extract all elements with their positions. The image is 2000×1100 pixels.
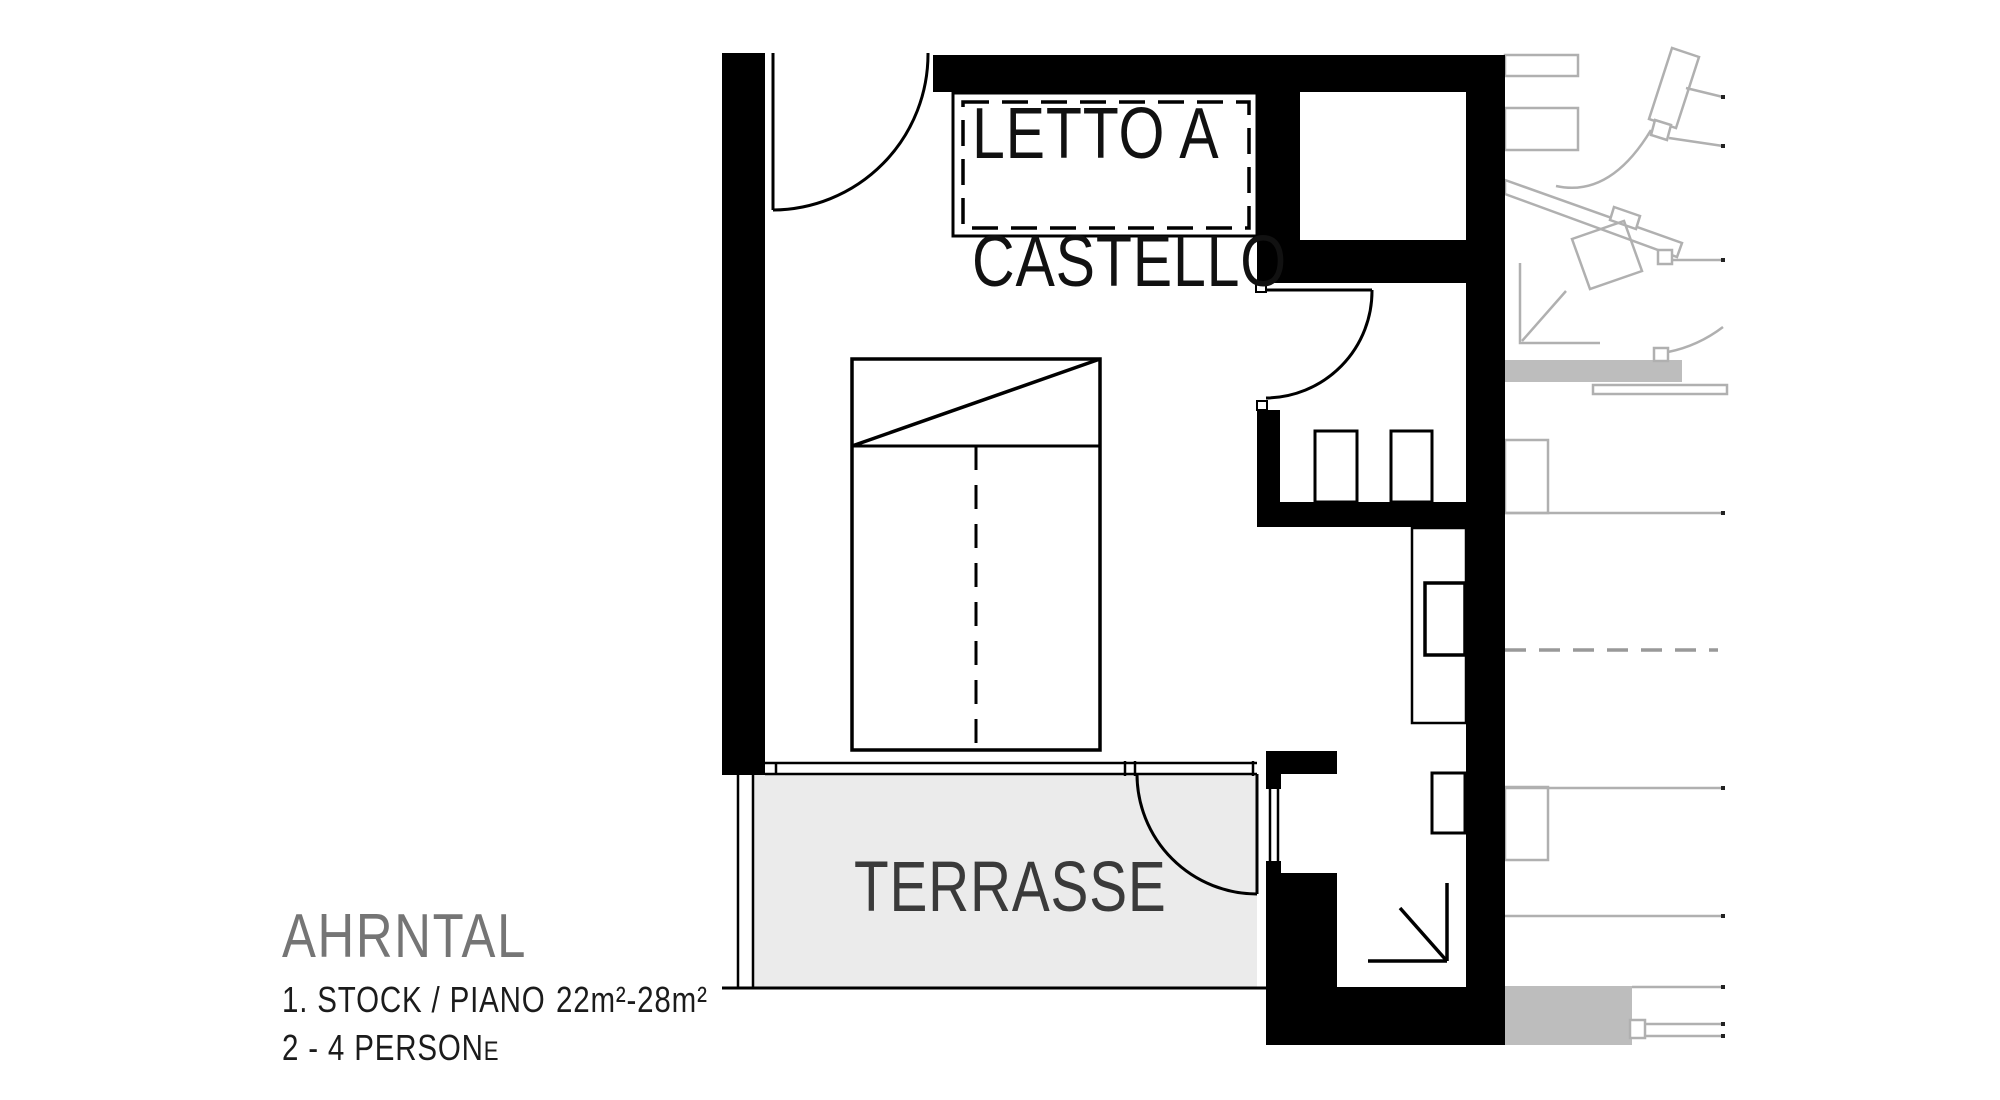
wardrobe-inner-box bbox=[1425, 583, 1465, 655]
fixtures bbox=[1315, 431, 1466, 833]
corridor-door-jamb-bottom bbox=[1257, 401, 1267, 410]
adjacent-terrace-slab-bottom bbox=[1505, 986, 1632, 1045]
adjacent-door-arc-1 bbox=[1556, 130, 1651, 188]
adjacent-section-marker-bar bbox=[1593, 385, 1727, 394]
terrace-label: TERRASSE bbox=[854, 852, 1167, 923]
adjacent-terrace-slab-top bbox=[1505, 360, 1682, 382]
floor-label: 1. STOCK / PIANO bbox=[282, 982, 546, 1018]
terrace-window-band bbox=[765, 761, 1257, 776]
entry-room-door-arc bbox=[773, 53, 928, 210]
door-jamb-blocks bbox=[1256, 283, 1267, 410]
sidelight-jamb-bottom bbox=[1266, 861, 1281, 874]
adjacent-wall-niche-4 bbox=[1505, 787, 1548, 860]
adjacent-rotated-wall-bar bbox=[1505, 180, 1682, 257]
wall-bottom-band bbox=[1266, 987, 1466, 1045]
leader-line-8 bbox=[1669, 138, 1723, 146]
sidelight-jamb-top bbox=[1266, 774, 1281, 789]
double-bed bbox=[852, 359, 1100, 750]
occupancy-label: 2 - 4 PERSONE bbox=[282, 1030, 499, 1066]
closet-unit-2 bbox=[1391, 431, 1432, 502]
bunk-bed-label: LETTO A CASTELLO bbox=[972, 102, 1287, 294]
occupancy-label-main: 2 - 4 PERSON bbox=[282, 1027, 484, 1068]
sidelight-window bbox=[1270, 789, 1278, 861]
area-label: 22m²-28m² bbox=[556, 982, 708, 1018]
wall-corridor-horizontal bbox=[1257, 502, 1466, 527]
bunk-bed-label-line2: CASTELLO bbox=[972, 222, 1287, 302]
corridor-door-arc bbox=[1266, 290, 1372, 398]
adjacent-door-jamb-tick-2 bbox=[1630, 1020, 1645, 1038]
adjacent-wall-niche-2 bbox=[1505, 108, 1578, 150]
bunk-bed-label-line1: LETTO A bbox=[972, 94, 1219, 174]
entry-arrow-diagonal bbox=[1400, 908, 1446, 960]
adjacent-furniture-foot-1 bbox=[1651, 120, 1671, 140]
occupancy-label-small-e: E bbox=[484, 1036, 500, 1066]
closet-unit-1 bbox=[1315, 431, 1357, 502]
adjacent-entry-arrow-diagonal bbox=[1522, 291, 1566, 341]
plan-title: AHRNTAL bbox=[282, 906, 527, 968]
entry-side-cabinet bbox=[1432, 773, 1465, 833]
wall-bath-bottom bbox=[1257, 240, 1466, 283]
adjacent-furniture-foot-2 bbox=[1658, 250, 1672, 264]
adjacent-door-jamb-tick-1 bbox=[1654, 348, 1668, 361]
adjacent-unit-faded bbox=[1505, 48, 1727, 1045]
adjacent-door-arc-2 bbox=[1668, 327, 1723, 352]
adjacent-wall-niche-1 bbox=[1505, 55, 1578, 76]
leader-line-7 bbox=[1686, 88, 1723, 97]
entry-corner-arrow bbox=[1368, 883, 1447, 961]
floorplan-page: LETTO A CASTELLO TERRASSE AHRNTAL 1. STO… bbox=[0, 0, 2000, 1100]
wall-terrace-block bbox=[1266, 751, 1337, 774]
adjacent-wall-niche-3 bbox=[1505, 440, 1548, 513]
wall-top bbox=[933, 55, 1505, 92]
leader-end-dots bbox=[1721, 95, 1725, 1038]
adjacent-rotated-furniture-bar bbox=[1649, 48, 1699, 128]
wall-left bbox=[722, 53, 765, 775]
wall-right bbox=[1466, 55, 1505, 1045]
